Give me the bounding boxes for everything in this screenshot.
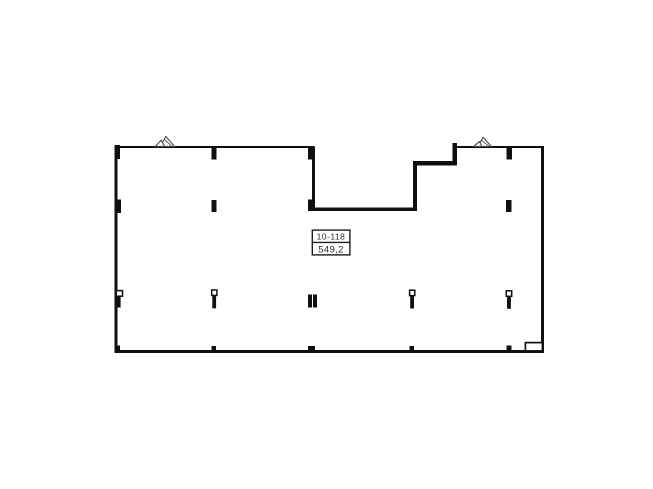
svg-text:549,2: 549,2 [318, 244, 344, 255]
svg-text:10-118: 10-118 [317, 232, 346, 242]
